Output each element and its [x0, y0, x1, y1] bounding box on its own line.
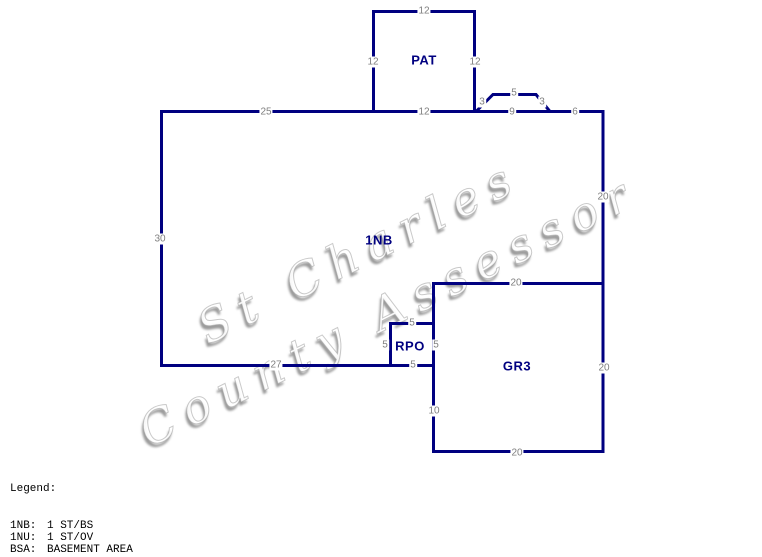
- dimension-bay-right-slant: 3: [538, 97, 546, 108]
- legend-abbr: BSA:: [10, 544, 47, 556]
- dimension-porch-bottom: 5: [409, 360, 417, 371]
- dimension-house-top-right-segment: 6: [571, 107, 579, 118]
- dimension-bay-top: 5: [510, 88, 518, 99]
- dimension-pat-right: 12: [468, 57, 481, 68]
- dimension-garage-right: 20: [597, 363, 610, 374]
- dimension-house-right: 20: [596, 192, 609, 203]
- area-label-rpo: RPO: [395, 339, 425, 354]
- legend-desc: 1 ST/OV: [47, 532, 93, 544]
- parcel-sketch-canvas: St Charles County Assessor 1212121225353…: [0, 0, 762, 557]
- legend-title: Legend:: [10, 483, 159, 495]
- dimension-porch-top: 5: [408, 318, 416, 329]
- legend-abbr: 1NB:: [10, 520, 47, 532]
- dimension-pat-left: 12: [366, 57, 379, 68]
- legend-abbr: 1NU:: [10, 532, 47, 544]
- legend-row-1nb: 1NB:1 ST/BS: [10, 520, 159, 532]
- dimension-garage-top: 20: [509, 278, 522, 289]
- legend-desc: BASEMENT AREA: [47, 544, 133, 556]
- legend-row-bsa: BSA:BASEMENT AREA: [10, 544, 159, 556]
- dimension-bay-left-slant: 3: [478, 97, 486, 108]
- dimension-garage-left-lower: 10: [427, 406, 440, 417]
- area-label-pat: PAT: [411, 53, 437, 68]
- dimension-garage-bottom: 20: [510, 448, 523, 459]
- dimension-house-left: 30: [153, 234, 166, 245]
- legend-entries: 1NB:1 ST/BS1NU:1 ST/OVBSA:BASEMENT AREAG…: [10, 520, 159, 557]
- dimension-pat-bottom: 12: [417, 107, 430, 118]
- legend: Legend: 1NB:1 ST/BS1NU:1 ST/OVBSA:BASEME…: [10, 459, 159, 557]
- dimension-house-top-left-segment: 25: [259, 107, 272, 118]
- dimension-house-bottom: 27: [269, 360, 282, 371]
- dimension-porch-right: 5: [432, 340, 440, 351]
- area-label-gr3: GR3: [503, 359, 531, 374]
- dimension-bay-base: 9: [508, 107, 516, 118]
- area-label-1nb: 1NB: [365, 233, 393, 248]
- dimension-pat-top: 12: [417, 6, 430, 17]
- legend-row-1nu: 1NU:1 ST/OV: [10, 532, 159, 544]
- legend-desc: 1 ST/BS: [47, 520, 93, 532]
- dimension-porch-left: 5: [381, 340, 389, 351]
